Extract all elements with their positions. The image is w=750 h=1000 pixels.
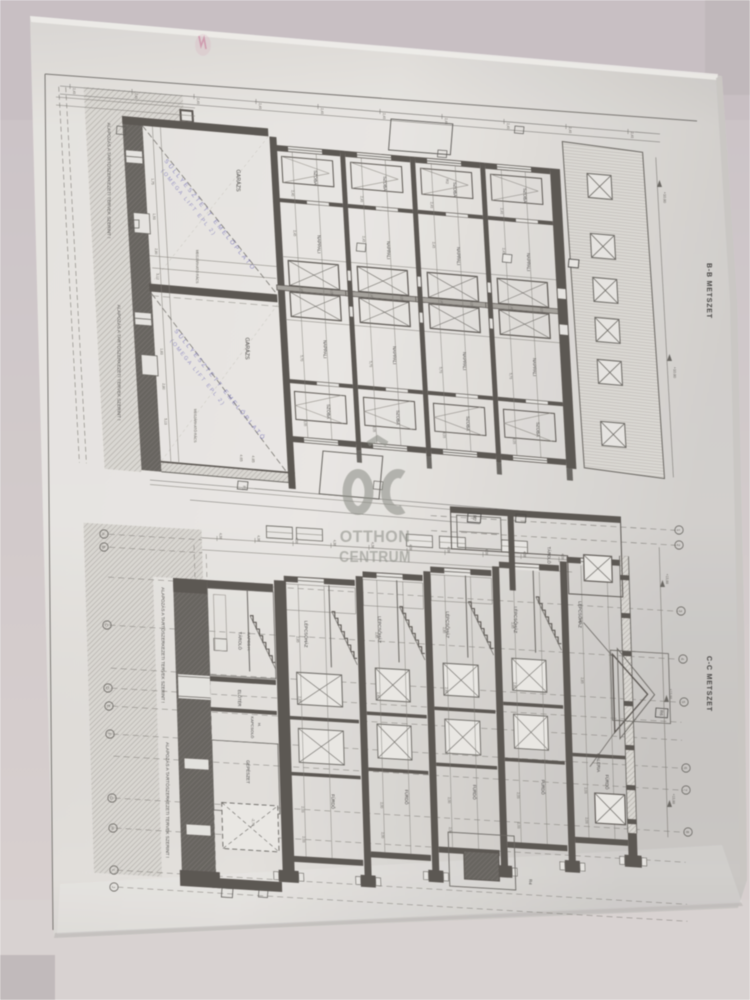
svg-text:2,00: 2,00 [380,832,384,838]
svg-text:D: D [105,686,110,689]
svg-text:2,00: 2,00 [585,817,589,823]
svg-text:R4: R4 [528,879,533,885]
svg-text:2,00: 2,00 [517,822,521,828]
svg-text:F: F [107,733,112,736]
svg-text:+13,88: +13,88 [672,794,676,805]
svg-text:2,40: 2,40 [320,108,324,114]
svg-text:FÜRDŐ: FÜRDŐ [404,790,409,806]
svg-text:ALAPOZÁS A TARTÓSZERKEZETI TER: ALAPOZÁS A TARTÓSZERKEZETI TERVEK SZERIN… [117,305,123,421]
svg-text:3,05: 3,05 [512,438,516,444]
svg-text:2,00: 2,00 [447,797,451,803]
svg-text:3,05: 3,05 [400,295,404,301]
svg-text:CENTRUM: CENTRUM [339,550,411,567]
svg-text:2,40: 2,40 [196,98,200,104]
svg-text:5,70: 5,70 [368,361,372,367]
svg-text:2,45: 2,45 [510,304,514,310]
svg-text:4,38: 4,38 [485,549,489,555]
svg-text:1,93: 1,93 [152,213,156,220]
svg-text:2,40: 2,40 [382,113,386,119]
svg-text:LÉPCSŐHÁZ: LÉPCSŐHÁZ [377,616,382,643]
svg-text:R7: R7 [472,515,477,522]
svg-text:2,45: 2,45 [362,236,366,242]
svg-text:2,85: 2,85 [513,682,517,688]
svg-text:+10,80: +10,80 [672,367,676,378]
svg-text:+10,80: +10,80 [663,192,667,203]
svg-text:2,40: 2,40 [499,208,503,214]
svg-text:4,38: 4,38 [219,533,223,539]
svg-text:4,38: 4,38 [523,551,527,557]
svg-text:2,85: 2,85 [296,636,300,642]
svg-text:B-B METSZET: B-B METSZET [705,263,712,319]
svg-text:2,45: 2,45 [432,242,436,248]
svg-text:H: H [110,826,115,829]
svg-text:4,38: 4,38 [333,540,337,546]
svg-text:4,85: 4,85 [251,456,255,463]
svg-text:2,45: 2,45 [502,248,506,254]
svg-text:LÉPCSŐHÁZ: LÉPCSŐHÁZ [513,607,518,634]
svg-text:1,75: 1,75 [150,178,154,185]
svg-text:OTTHON: OTTHON [340,527,410,545]
svg-text:I: I [111,869,116,870]
svg-text:2,00: 2,00 [516,792,520,798]
svg-text:GARÁZS: GARÁZS [234,170,241,193]
svg-text:E: E [106,705,111,708]
svg-text:2,80: 2,80 [162,383,166,390]
svg-text:2,40: 2,40 [72,88,76,94]
svg-text:LÉPCSŐHÁZ: LÉPCSŐHÁZ [304,621,309,648]
svg-text:FÜRDŐ: FÜRDŐ [605,775,610,791]
svg-text:ALAPOZÁS A TARTÓSZERKEZETI TER: ALAPOZÁS A TARTÓSZERKEZETI TERVEK SZERIN… [106,123,112,239]
svg-text:R2: R2 [445,179,450,185]
svg-text:2,40: 2,40 [290,190,294,196]
svg-text:TÁROLÓ: TÁROLÓ [238,632,243,651]
svg-text:2,85: 2,85 [376,692,380,698]
svg-text:MEGJÁRHATÓ RÁCS: MEGJÁRHATÓ RÁCS [193,409,198,443]
svg-text:4,38: 4,38 [561,553,565,559]
svg-text:3,05: 3,05 [470,301,474,307]
svg-text:LÉPCSŐHÁZ: LÉPCSŐHÁZ [578,601,583,628]
svg-text:3,05: 3,05 [303,420,307,426]
svg-text:2,85: 2,85 [442,627,446,633]
svg-text:2,85: 2,85 [297,696,301,702]
svg-text:2,40: 2,40 [359,196,363,202]
svg-text:3,05: 3,05 [330,289,334,295]
svg-text:3,05: 3,05 [442,432,446,438]
svg-text:J: J [111,886,116,888]
svg-text:2,85: 2,85 [444,687,448,693]
svg-text:2,40: 2,40 [630,132,634,138]
svg-text:5,13: 5,13 [164,418,168,425]
svg-text:2,85: 2,85 [580,677,584,683]
svg-text:5,70: 5,70 [438,367,442,373]
svg-text:2,00: 2,00 [379,802,383,808]
svg-text:FÜRDŐ: FÜRDŐ [331,794,336,810]
svg-text:ELŐTÉR: ELŐTÉR [237,690,242,707]
svg-text:2,40: 2,40 [506,123,510,129]
svg-text:3,05: 3,05 [540,307,544,313]
svg-text:GARÁZS: GARÁZS [244,338,251,361]
svg-text:2,45: 2,45 [300,286,304,292]
svg-text:H.: H. [257,723,262,727]
svg-text:C-C METSZET: C-C METSZET [705,656,712,712]
svg-text:FÜRDŐ: FÜRDŐ [472,785,477,801]
svg-text:ALAPOZÁS A TARTÓSZERKEZETI TER: ALAPOZÁS A TARTÓSZERKEZETI TERVEK SZERIN… [160,587,166,703]
svg-text:MEGJÁRHATÓ RÁCS: MEGJÁRHATÓ RÁCS [195,250,200,284]
svg-text:2,40: 2,40 [134,93,138,99]
svg-text:2,00: 2,00 [301,806,305,812]
svg-text:1,83: 1,83 [160,348,164,355]
svg-text:C: C [104,623,109,626]
svg-text:R6: R6 [659,710,664,716]
svg-text:3,12: 3,12 [156,273,160,280]
svg-text:2,00: 2,00 [302,836,306,842]
svg-text:FÜRDŐ: FÜRDŐ [540,780,545,796]
svg-text:GÉPÉSZET: GÉPÉSZET [245,760,250,784]
svg-text:3,05: 3,05 [372,426,376,432]
svg-text:ALAPOZÁS A TARTÓSZERKEZETI TER: ALAPOZÁS A TARTÓSZERKEZETI TERVEK SZERIN… [165,742,171,858]
svg-text:4,38: 4,38 [295,537,299,543]
svg-text:4,65: 4,65 [239,455,243,462]
svg-text:2,45: 2,45 [370,292,374,298]
svg-text:2,00: 2,00 [584,787,588,793]
svg-text:2,45: 2,45 [293,230,297,236]
svg-text:2,85: 2,85 [511,622,515,628]
svg-text:2,45: 2,45 [440,298,444,304]
svg-text:-2,70: -2,70 [251,818,255,826]
svg-text:G: G [109,796,114,799]
svg-text:2,40: 2,40 [568,127,572,133]
svg-text:TÁROLÓ: TÁROLÓ [546,547,551,565]
svg-text:2,85: 2,85 [374,632,378,638]
svg-text:A: A [101,533,106,536]
svg-text:2,40: 2,40 [258,103,262,109]
svg-text:KAPCSOLÓ: KAPCSOLÓ [250,716,255,738]
svg-text:+13,88: +13,88 [668,689,672,700]
svg-text:4,38: 4,38 [447,547,451,553]
svg-text:+13,88: +13,88 [665,574,669,585]
svg-text:2,80: 2,80 [154,248,158,255]
svg-text:5,70: 5,70 [299,355,303,361]
svg-text:2,85: 2,85 [579,617,583,623]
svg-text:B: B [101,546,106,549]
svg-text:2,40: 2,40 [429,202,433,208]
svg-text:5,70: 5,70 [508,373,512,379]
svg-text:4,38: 4,38 [257,535,261,541]
